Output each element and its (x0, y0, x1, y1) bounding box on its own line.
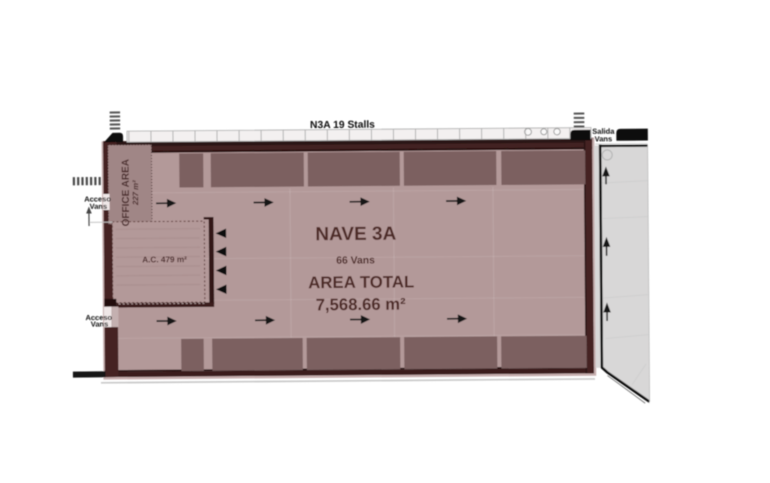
svg-text:A.C. 479 m²: A.C. 479 m² (142, 255, 187, 264)
svg-text:Vans: Vans (91, 319, 109, 328)
svg-text:Vans: Vans (595, 134, 613, 143)
svg-text:NAVE 3A: NAVE 3A (315, 224, 396, 246)
svg-text:AREA TOTAL: AREA TOTAL (308, 272, 414, 292)
svg-text:7,568.66 m²: 7,568.66 m² (316, 295, 407, 315)
svg-text:66 Vans: 66 Vans (336, 255, 375, 266)
svg-text:227 m²: 227 m² (131, 180, 140, 206)
svg-text:N3A 19 Stalls: N3A 19 Stalls (310, 120, 375, 132)
svg-text:Vans: Vans (90, 202, 108, 211)
